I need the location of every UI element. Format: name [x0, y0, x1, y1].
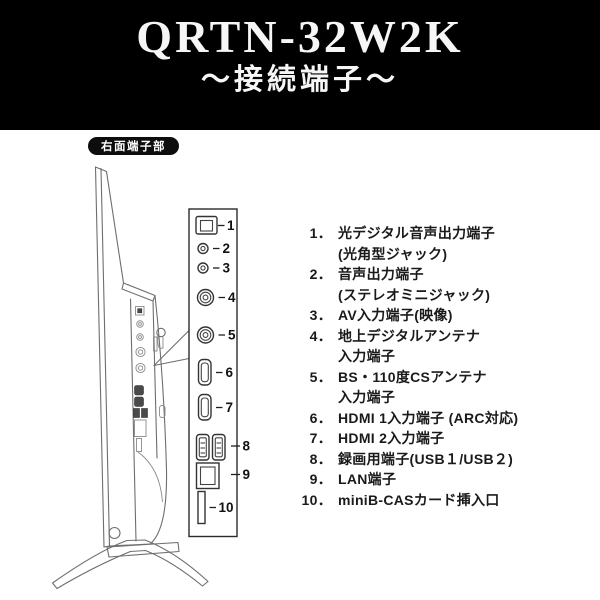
port9-label: 9 — [243, 467, 251, 482]
row-text: (ステレオミニジャック) — [338, 285, 490, 306]
port7-label: 7 — [226, 400, 234, 415]
port3-label: 3 — [223, 261, 231, 276]
row-text: 入力端子 — [338, 387, 395, 408]
row-number: 7． — [298, 428, 332, 449]
stand-legs — [53, 540, 209, 589]
port8-label: 8 — [243, 439, 251, 454]
audio-out-port — [198, 244, 208, 254]
port10-label: 10 — [219, 500, 234, 515]
row-text: 光デジタル音声出力端子 — [338, 223, 495, 244]
tv-side-view — [53, 167, 209, 589]
row-number: 8． — [298, 449, 332, 470]
mini-antenna-jack-2 — [136, 363, 145, 372]
terminal-list-row: 7．HDMI 2入力端子 — [298, 428, 518, 449]
row-number: 3． — [298, 305, 332, 326]
mini-optical-port-inner — [138, 309, 142, 313]
port5-label: 5 — [228, 328, 236, 343]
tv-housing-back-edge — [110, 296, 167, 547]
mini-av-jack — [137, 334, 144, 341]
terminal-list-row: 入力端子 — [298, 387, 518, 408]
row-number: 10． — [298, 490, 332, 511]
stand-screw-icon — [109, 528, 120, 539]
mini-usb1 — [134, 409, 140, 418]
mini-antenna-jack-1 — [136, 347, 145, 356]
row-number — [298, 387, 332, 408]
row-text: 地上デジタルアンテナ — [338, 326, 480, 347]
row-text: 録画用端子(USB１/USB２) — [338, 449, 513, 470]
minibcas-slot — [198, 492, 205, 524]
tv-port-strip-right — [153, 301, 157, 458]
tv-back-slant — [107, 172, 124, 284]
row-text: HDMI 1入力端子 (ARC対応) — [338, 408, 518, 429]
mini-av-jack-pin — [139, 336, 142, 339]
mini-audio-jack-pin — [139, 323, 142, 326]
row-number: 6． — [298, 408, 332, 429]
row-text: AV入力端子(映像) — [338, 305, 453, 326]
mini-bcas-slot — [137, 439, 142, 452]
terminal-list-row: 5．BS・110度CSアンテナ — [298, 367, 518, 388]
mini-usb2 — [142, 409, 148, 418]
terminal-list-row: 入力端子 — [298, 346, 518, 367]
row-text: miniB-CASカード挿入口 — [338, 490, 500, 511]
row-number — [298, 346, 332, 367]
terminal-list-row: (光角型ジャック) — [298, 244, 518, 265]
port6-label: 6 — [226, 365, 234, 380]
row-number: 5． — [298, 367, 332, 388]
row-number: 4． — [298, 326, 332, 347]
mini-antenna-jack-2-pin — [138, 366, 142, 370]
terminal-panel: 1 2 3 4 5 6 — [189, 209, 251, 537]
mini-hdmi2 — [135, 397, 144, 407]
product-spec-image: QRTN-32W2K ～接続端子～ 右面端子部 — [0, 0, 600, 600]
port2-label: 2 — [223, 241, 231, 256]
terminal-list-row: (ステレオミニジャック) — [298, 285, 518, 306]
mini-audio-jack — [137, 321, 144, 328]
row-text: HDMI 2入力端子 — [338, 428, 444, 449]
tv-housing-step — [122, 283, 155, 301]
terminal-list-row: 2．音声出力端子 — [298, 264, 518, 285]
terminal-list-row: 6．HDMI 1入力端子 (ARC対応) — [298, 408, 518, 429]
row-number — [298, 244, 332, 265]
row-text: BS・110度CSアンテナ — [338, 367, 487, 388]
av-input-port — [198, 263, 208, 273]
terminal-list-row: 3．AV入力端子(映像) — [298, 305, 518, 326]
terminal-list-row: 1．光デジタル音声出力端子 — [298, 223, 518, 244]
row-number: 2． — [298, 264, 332, 285]
terminal-list-row: 9．LAN端子 — [298, 469, 518, 490]
mini-hdmi1 — [135, 386, 144, 396]
row-number: 1． — [298, 223, 332, 244]
row-text: LAN端子 — [338, 469, 396, 490]
port4-label: 4 — [228, 290, 236, 305]
terminal-list-row: 10．miniB-CASカード挿入口 — [298, 490, 518, 511]
mini-antenna-jack-1-pin — [138, 350, 142, 354]
row-text: 入力端子 — [338, 346, 395, 367]
tv-mini-ports — [134, 307, 148, 452]
row-text: 音声出力端子 — [338, 264, 424, 285]
terminal-list-row: 4．地上デジタルアンテナ — [298, 326, 518, 347]
terminal-list: 1．光デジタル音声出力端子 (光角型ジャック) 2．音声出力端子 (ステレオミニ… — [298, 223, 518, 510]
port1-label: 1 — [227, 218, 235, 233]
row-number: 9． — [298, 469, 332, 490]
mini-lan-port — [135, 420, 147, 437]
row-text: (光角型ジャック) — [338, 244, 447, 265]
terminal-list-row: 8．録画用端子(USB１/USB２) — [298, 449, 518, 470]
row-number — [298, 285, 332, 306]
tv-housing-bottom-curve — [138, 452, 163, 502]
